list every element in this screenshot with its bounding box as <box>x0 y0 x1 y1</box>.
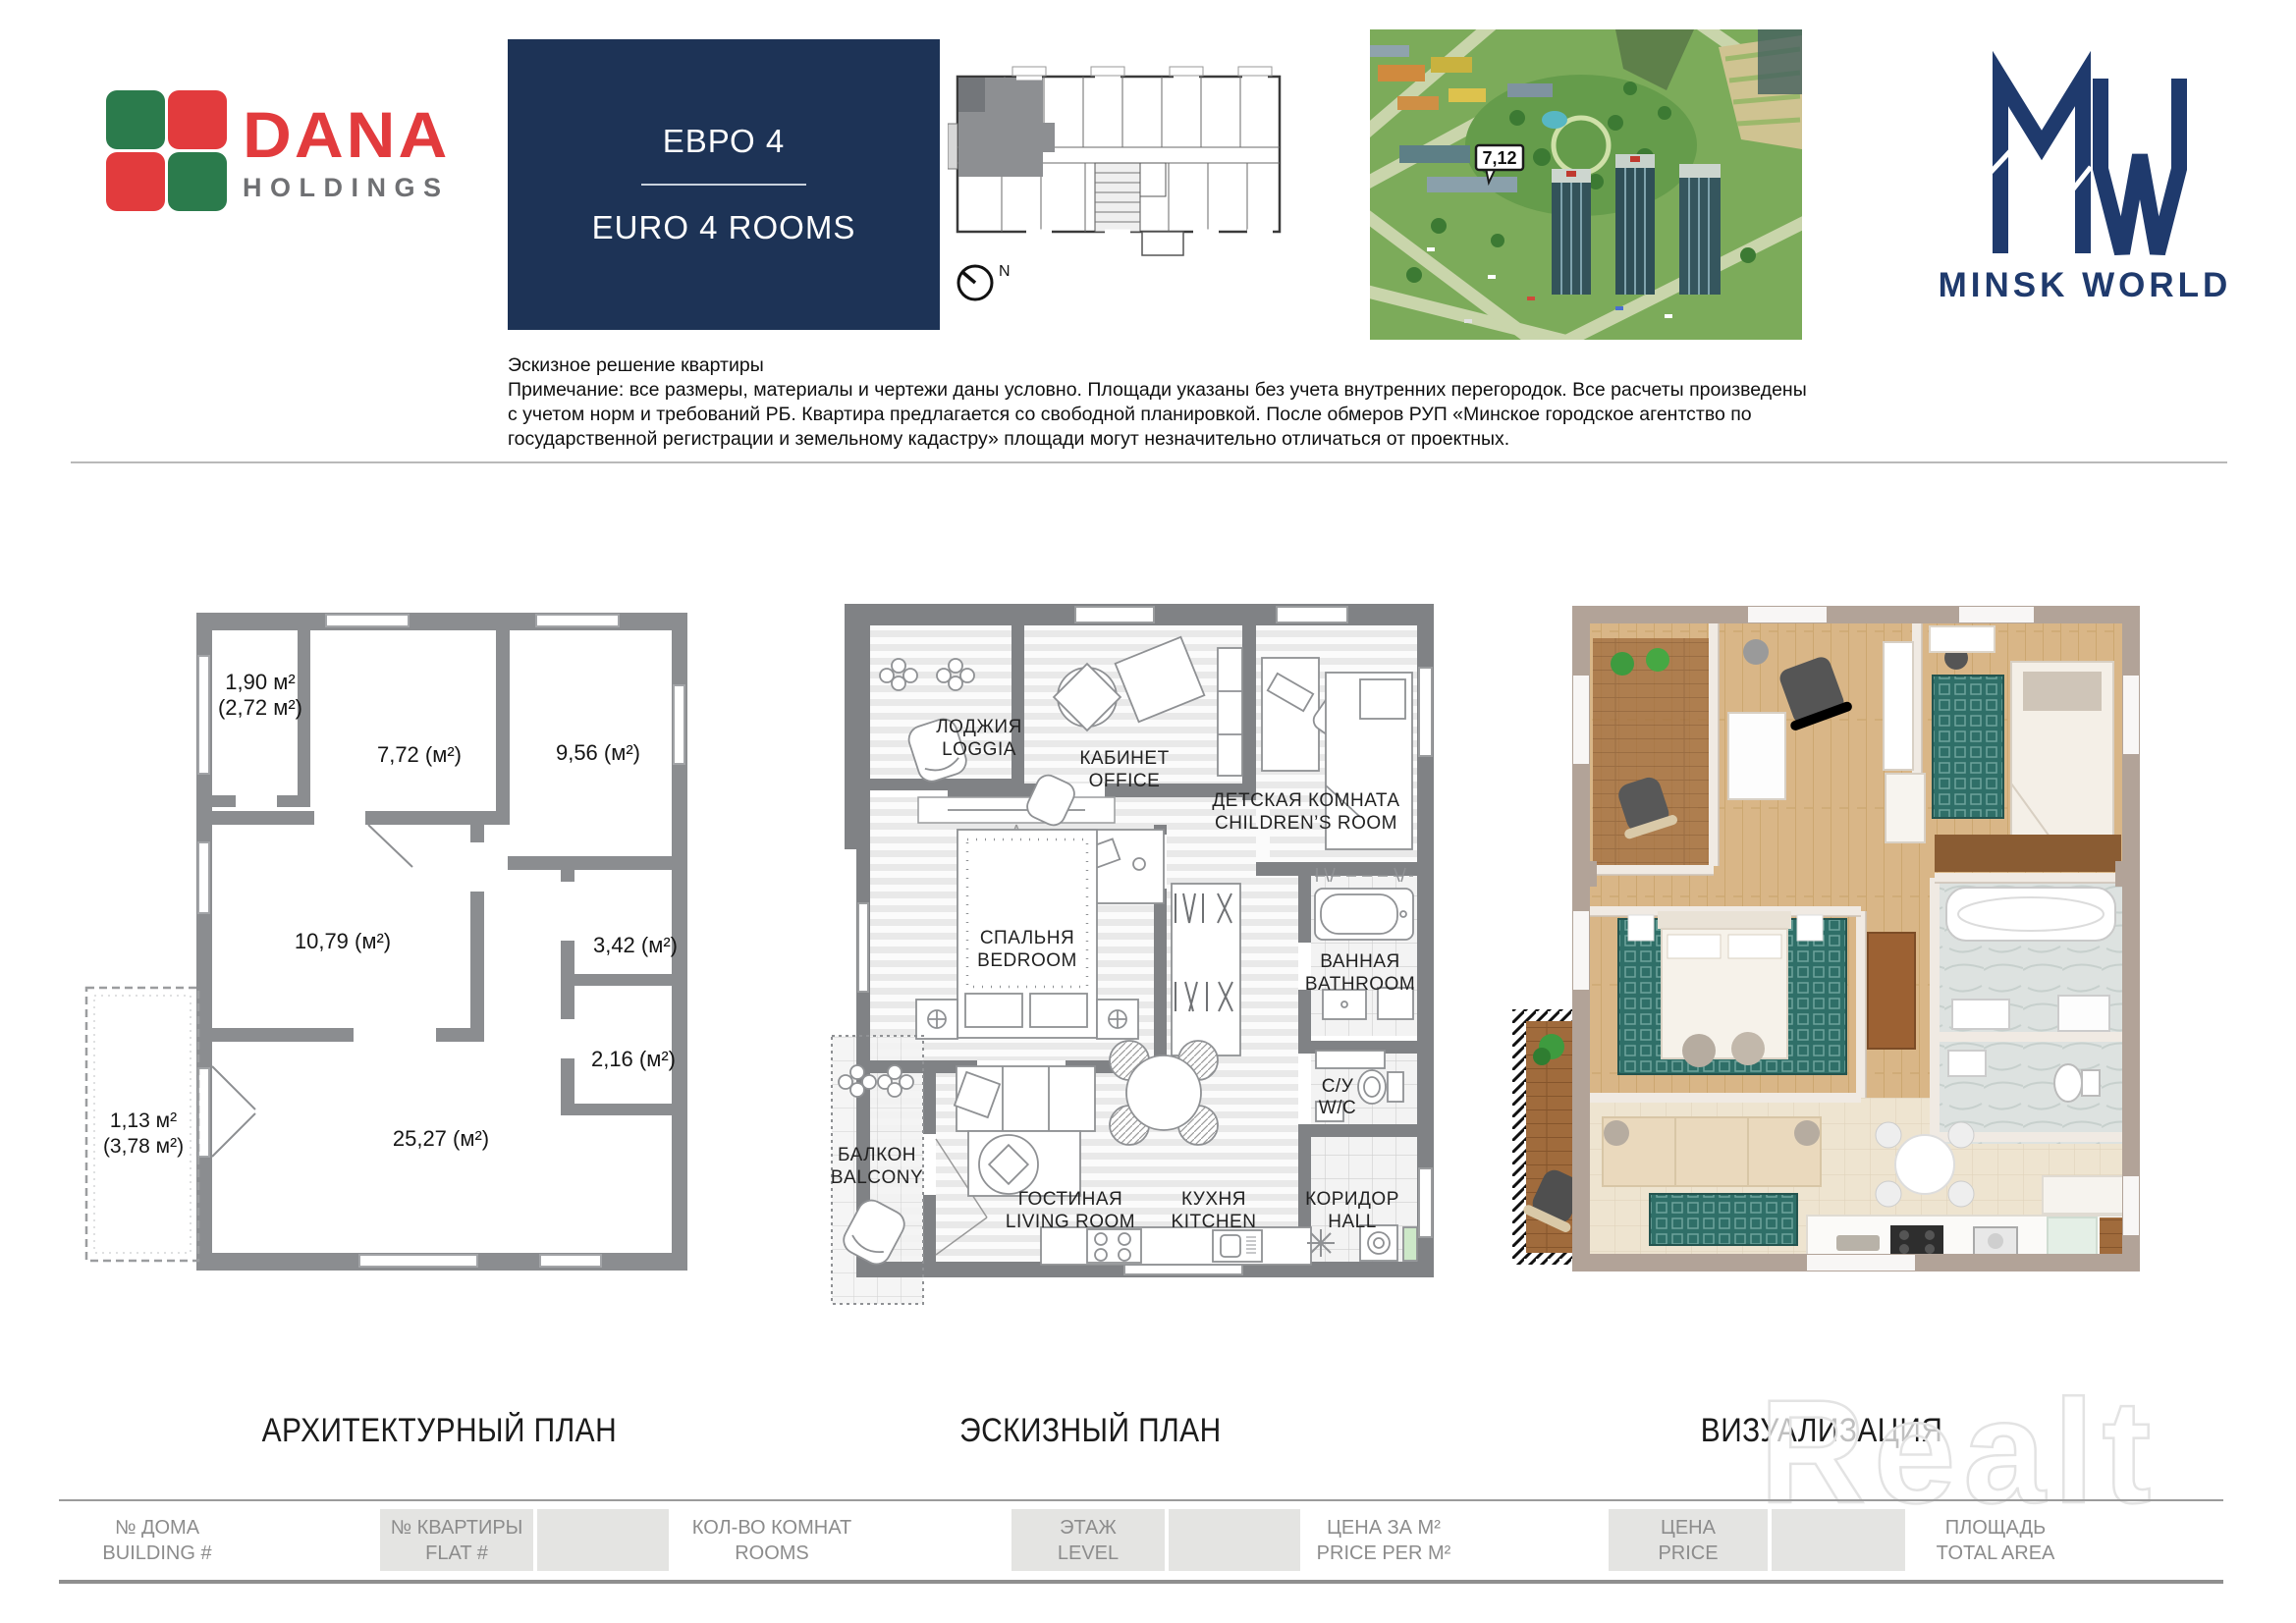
disclaimer-line-1: Эскизное решение квартиры <box>508 353 1824 378</box>
disclaimer-line-2: Примечание: все размеры, материалы и чер… <box>508 378 1824 403</box>
unit-type-divider <box>641 184 806 186</box>
area-wc: 2,16 (м²) <box>591 1047 676 1071</box>
label-loggia-en: LOGGIA <box>942 739 1016 760</box>
minsk-world-logo: MINSK WORLD <box>1903 51 2267 308</box>
footer-flat-value-box <box>537 1509 669 1571</box>
unit-type-en: EURO 4 ROOMS <box>592 209 856 246</box>
label-balcony-ru: БАЛКОН <box>838 1145 916 1165</box>
area-bathroom: 3,42 (м²) <box>593 933 678 957</box>
site-label-text: 7,12 <box>1482 148 1516 168</box>
label-hall-ru: КОРИДОР <box>1305 1189 1399 1210</box>
footer-price-value-box <box>1772 1509 1905 1571</box>
area-bedroom: 10,79 (м²) <box>295 929 391 953</box>
dana-sub-text: HOLDINGS <box>243 175 450 201</box>
elevator <box>1140 163 1166 196</box>
footer-area-label: ПЛОЩАДЬ TOTAL AREA <box>1897 1509 2094 1571</box>
dana-holdings-logo: DANA HOLDINGS <box>106 90 450 211</box>
dana-brand-text: DANA <box>243 102 450 167</box>
kitchen-counter <box>1041 1227 1311 1265</box>
label-hall-en: HALL <box>1328 1212 1377 1232</box>
towers <box>1552 154 1721 295</box>
area-balcony-1: 1,13 м² <box>110 1109 177 1132</box>
label-office-en: OFFICE <box>1089 771 1161 791</box>
label-living-ru: ГОСТИНАЯ <box>1018 1189 1122 1210</box>
area-loggia-2: (2,72 м²) <box>218 695 302 720</box>
bathtub-icon <box>1315 889 1413 940</box>
label-kitchen-ru: КУХНЯ <box>1181 1189 1246 1210</box>
dining-table <box>1110 1041 1218 1145</box>
unit-type-box: ЕВРО 4 EURO 4 ROOMS <box>508 39 940 330</box>
area-loggia-1: 1,90 м² <box>225 670 295 694</box>
footer-price-box: ЦЕНА PRICE <box>1609 1509 1768 1571</box>
stove-icon <box>1087 1229 1141 1263</box>
label-kitchen-en: KITCHEN <box>1172 1212 1257 1232</box>
doormat <box>1403 1227 1417 1261</box>
label-living-en: LIVING ROOM <box>1006 1212 1135 1232</box>
footer-building-label: № ДОМА BUILDING # <box>59 1509 255 1571</box>
compass-icon: N <box>958 263 1011 299</box>
aerial-site-render: 7,12 <box>1370 29 1802 340</box>
architectural-plan: 1,90 м² (2,72 м²) 7,72 (м²) 9,56 (м²) 10… <box>79 607 692 1279</box>
disclaimer-line-3: с учетом норм и требований РБ. Квартира … <box>508 403 1824 427</box>
label-bathroom-ru: ВАННАЯ <box>1320 951 1400 972</box>
footer-top-line <box>59 1499 2223 1501</box>
footer-price-m2-label: ЦЕНА ЗА М² PRICE PER M² <box>1285 1509 1482 1571</box>
footer-level-value-box <box>1169 1509 1300 1571</box>
dana-logo-icon <box>106 90 227 211</box>
entrance <box>1142 232 1183 255</box>
unit-type-ru: ЕВРО 4 <box>663 123 786 160</box>
disclaimer-line-4: государственной регистрации и земельному… <box>508 427 1824 452</box>
label-wc-en: W/C <box>1319 1098 1356 1118</box>
label-wc-ru: С/У <box>1322 1076 1354 1097</box>
label-balcony-en: BALCONY <box>831 1167 923 1188</box>
area-children: 9,56 (м²) <box>556 740 640 765</box>
sketch-plan: ЛОДЖИЯ LOGGIA КАБИНЕТ OFFICE ДЕТСКАЯ КОМ… <box>830 589 1439 1316</box>
toilet-icon <box>1358 1070 1403 1104</box>
label-loggia-ru: ЛОДЖИЯ <box>936 717 1022 737</box>
label-children-en: CHILDREN’S ROOM <box>1215 813 1397 834</box>
hall-star-icon <box>1307 1229 1335 1257</box>
highlighted-unit <box>958 78 1055 177</box>
area-balcony-2: (3,78 м²) <box>103 1135 184 1158</box>
label-bedroom-en: BEDROOM <box>977 950 1077 971</box>
compass-north-label: N <box>999 263 1011 280</box>
door-swings <box>212 825 412 1157</box>
footer-level-box: ЭТАЖ LEVEL <box>1011 1509 1165 1571</box>
minsk-world-monogram-icon: MINSK WORLD <box>1918 51 2252 308</box>
children-desk <box>1262 658 1319 771</box>
flyer-page: DANA HOLDINGS ЕВРО 4 EURO 4 ROOMS <box>0 0 2296 1623</box>
visualization-render <box>1512 587 2200 1279</box>
footer-flat-box: № КВАРТИРЫ FLAT # <box>380 1509 533 1571</box>
footer-bottom-line <box>59 1580 2223 1584</box>
hall-shelf <box>1316 1051 1385 1068</box>
label-children-ru: ДЕТСКАЯ КОМНАТА <box>1212 790 1399 811</box>
sink-icon <box>1213 1230 1262 1262</box>
label-bedroom-ru: СПАЛЬНЯ <box>980 928 1074 948</box>
area-living: 25,27 (м²) <box>393 1126 489 1151</box>
arch-area-labels: 1,90 м² (2,72 м²) 7,72 (м²) 9,56 (м²) 10… <box>103 670 678 1158</box>
architectural-plan-title: АРХИТЕКТУРНЫЙ ПЛАН <box>184 1412 694 1450</box>
footer-rooms-label: КОЛ-ВО КОМНАТ ROOMS <box>674 1509 870 1571</box>
area-office: 7,72 (м²) <box>377 742 462 767</box>
label-bathroom-en: BATHROOM <box>1305 974 1415 995</box>
building-floor-mini-plan: N <box>948 29 1360 339</box>
sketch-plan-title: ЭСКИЗНЫЙ ПЛАН <box>830 1412 1350 1450</box>
label-office-ru: КАБИНЕТ <box>1079 748 1169 769</box>
minsk-world-text: MINSK WORLD <box>1939 266 2232 304</box>
office-shelf <box>1218 648 1242 776</box>
disclaimer-text: Эскизное решение квартиры Примечание: вс… <box>508 353 1824 452</box>
header-separator <box>71 461 2227 463</box>
